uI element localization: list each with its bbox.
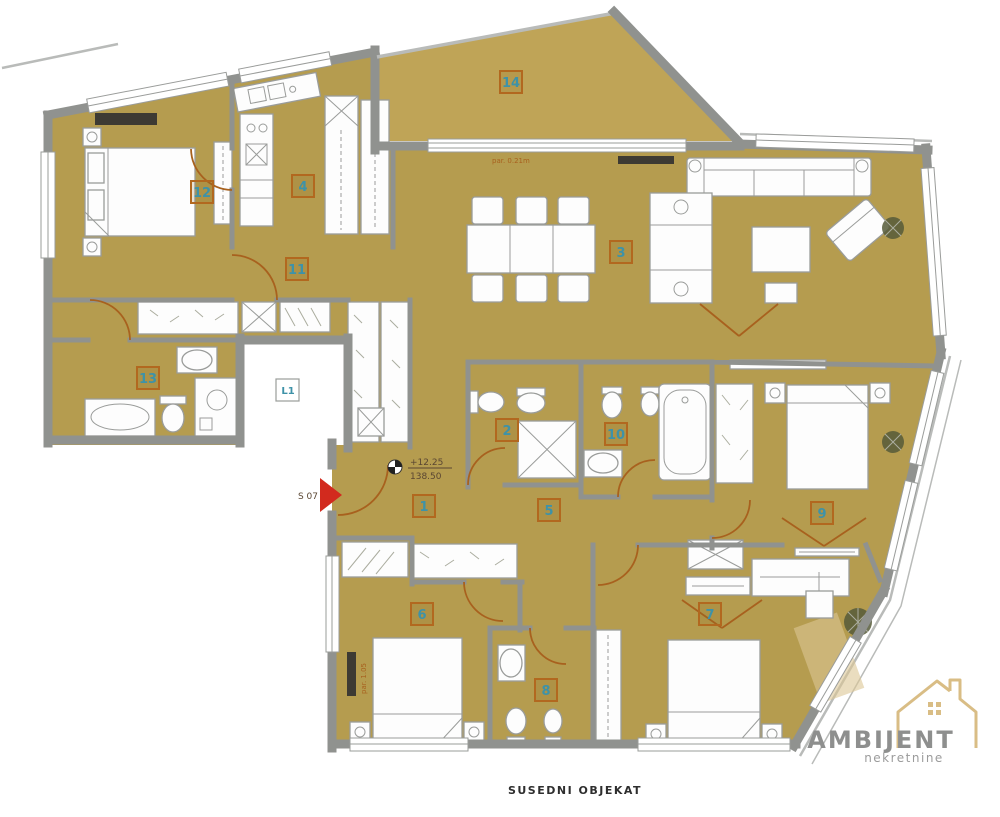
room-label-4: 4 [292, 175, 314, 197]
toilet-icon [162, 404, 184, 432]
hall-closets [138, 302, 330, 334]
window [638, 738, 790, 751]
closet-icon [280, 302, 330, 332]
sink-icon [517, 393, 545, 413]
room-label-9: 9 [811, 502, 833, 524]
svg-text:1: 1 [419, 500, 428, 515]
chair-icon [558, 275, 589, 302]
toilet-icon [602, 392, 622, 418]
nightstand-icon [83, 128, 101, 146]
room-label-6: 6 [411, 603, 433, 625]
room-label-8: 8 [535, 679, 557, 701]
nightstand-icon [765, 383, 785, 403]
sink-icon [500, 649, 522, 677]
radiator-icon [347, 652, 356, 696]
neighbor-edge-line [2, 44, 118, 68]
nightstand-icon [83, 238, 101, 256]
toilet-icon [506, 708, 526, 734]
bed-icon [787, 385, 868, 489]
bed-icon [668, 640, 760, 744]
closet-icon [342, 542, 408, 577]
bathtub-icon [659, 384, 711, 480]
kitchen-counter-icon [240, 114, 273, 226]
tv-cabinet-icon [650, 193, 712, 303]
elevator-label: L1 [276, 379, 299, 401]
bidet-icon [544, 709, 562, 733]
chair-icon [472, 275, 503, 302]
svg-text:13: 13 [139, 372, 157, 387]
pillow-icon [88, 190, 104, 220]
terrace-sliding-door [428, 139, 686, 152]
svg-text:9: 9 [817, 507, 826, 522]
chair-icon [472, 197, 503, 224]
svg-text:10: 10 [607, 428, 625, 443]
svg-text:L1: L1 [281, 386, 294, 397]
svg-text:12: 12 [193, 186, 211, 201]
room-label-11: 11 [286, 258, 308, 280]
svg-text:4: 4 [298, 180, 307, 195]
radiator-icon [618, 156, 674, 164]
elevation-value: +12.25 [410, 458, 443, 468]
svg-text:2: 2 [502, 424, 511, 439]
svg-text:11: 11 [288, 263, 306, 278]
svg-text:7: 7 [705, 608, 714, 623]
pillow-icon [88, 153, 104, 183]
wardrobe-icon [716, 384, 753, 483]
room-label-2: 2 [496, 419, 518, 441]
nightstand-icon [870, 383, 890, 403]
room-label-3: 3 [610, 241, 632, 263]
room-label-1: 1 [413, 495, 435, 517]
closet-icon [138, 302, 238, 334]
toilet-tank-icon [470, 391, 478, 413]
coffee-table-icon [752, 227, 810, 272]
svg-text:3: 3 [616, 246, 625, 261]
room-label-7: 7 [699, 603, 721, 625]
svg-text:6: 6 [417, 608, 426, 623]
svg-text:5: 5 [544, 504, 553, 519]
area-value: 138.50 [410, 472, 442, 482]
entry-wardrobe [348, 302, 410, 442]
unit-label: S 07 [298, 492, 318, 502]
sink-icon [182, 350, 212, 370]
bidet-icon [641, 392, 659, 416]
svg-text:14: 14 [502, 76, 520, 91]
window [326, 556, 339, 652]
washing-machine-icon [195, 378, 239, 436]
wardrobe-icon [381, 302, 410, 442]
desk-icon [806, 591, 833, 618]
room-label-10: 10 [605, 423, 627, 445]
sink-icon [588, 453, 618, 473]
toilet-icon [478, 392, 504, 412]
logo-tagline-text: nekretnine [864, 751, 944, 765]
window [350, 738, 468, 751]
window [41, 152, 55, 258]
room-label-5: 5 [538, 499, 560, 521]
sofa-icon [687, 158, 871, 196]
floors [48, 14, 941, 746]
floor-plan-canvas: 1 2 3 4 5 6 7 8 9 10 11 12 13 14 L1 S 07… [0, 0, 1000, 817]
svg-text:8: 8 [541, 684, 550, 699]
toilet-tank-icon [160, 396, 186, 404]
parapet-note-left: par. 1.05 [360, 663, 368, 694]
bed-icon [373, 638, 462, 744]
parapet-note-top: par. 0.21m [492, 157, 530, 165]
radiator-icon [95, 113, 157, 125]
dining-table-icon [467, 225, 595, 273]
bottom-caption: SUSEDNI OBJEKAT [508, 784, 642, 797]
chair-icon [516, 197, 547, 224]
side-table-icon [765, 283, 797, 303]
room-label-12: 12 [191, 181, 213, 203]
room-label-13: 13 [137, 367, 159, 389]
chair-icon [558, 197, 589, 224]
chair-icon [516, 275, 547, 302]
logo-brand-text: AMBIJENT [807, 726, 954, 754]
room-label-14: 14 [500, 71, 522, 93]
